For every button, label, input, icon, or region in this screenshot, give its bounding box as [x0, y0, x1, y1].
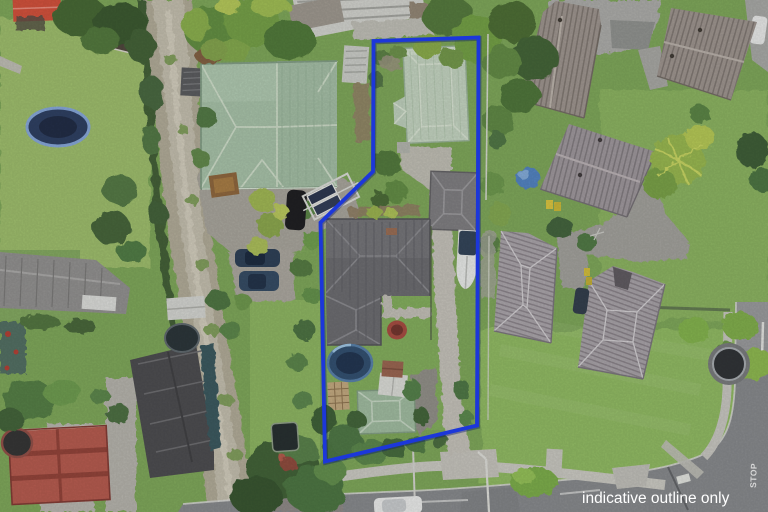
svg-text:indicative outline only: indicative outline only: [582, 490, 730, 507]
